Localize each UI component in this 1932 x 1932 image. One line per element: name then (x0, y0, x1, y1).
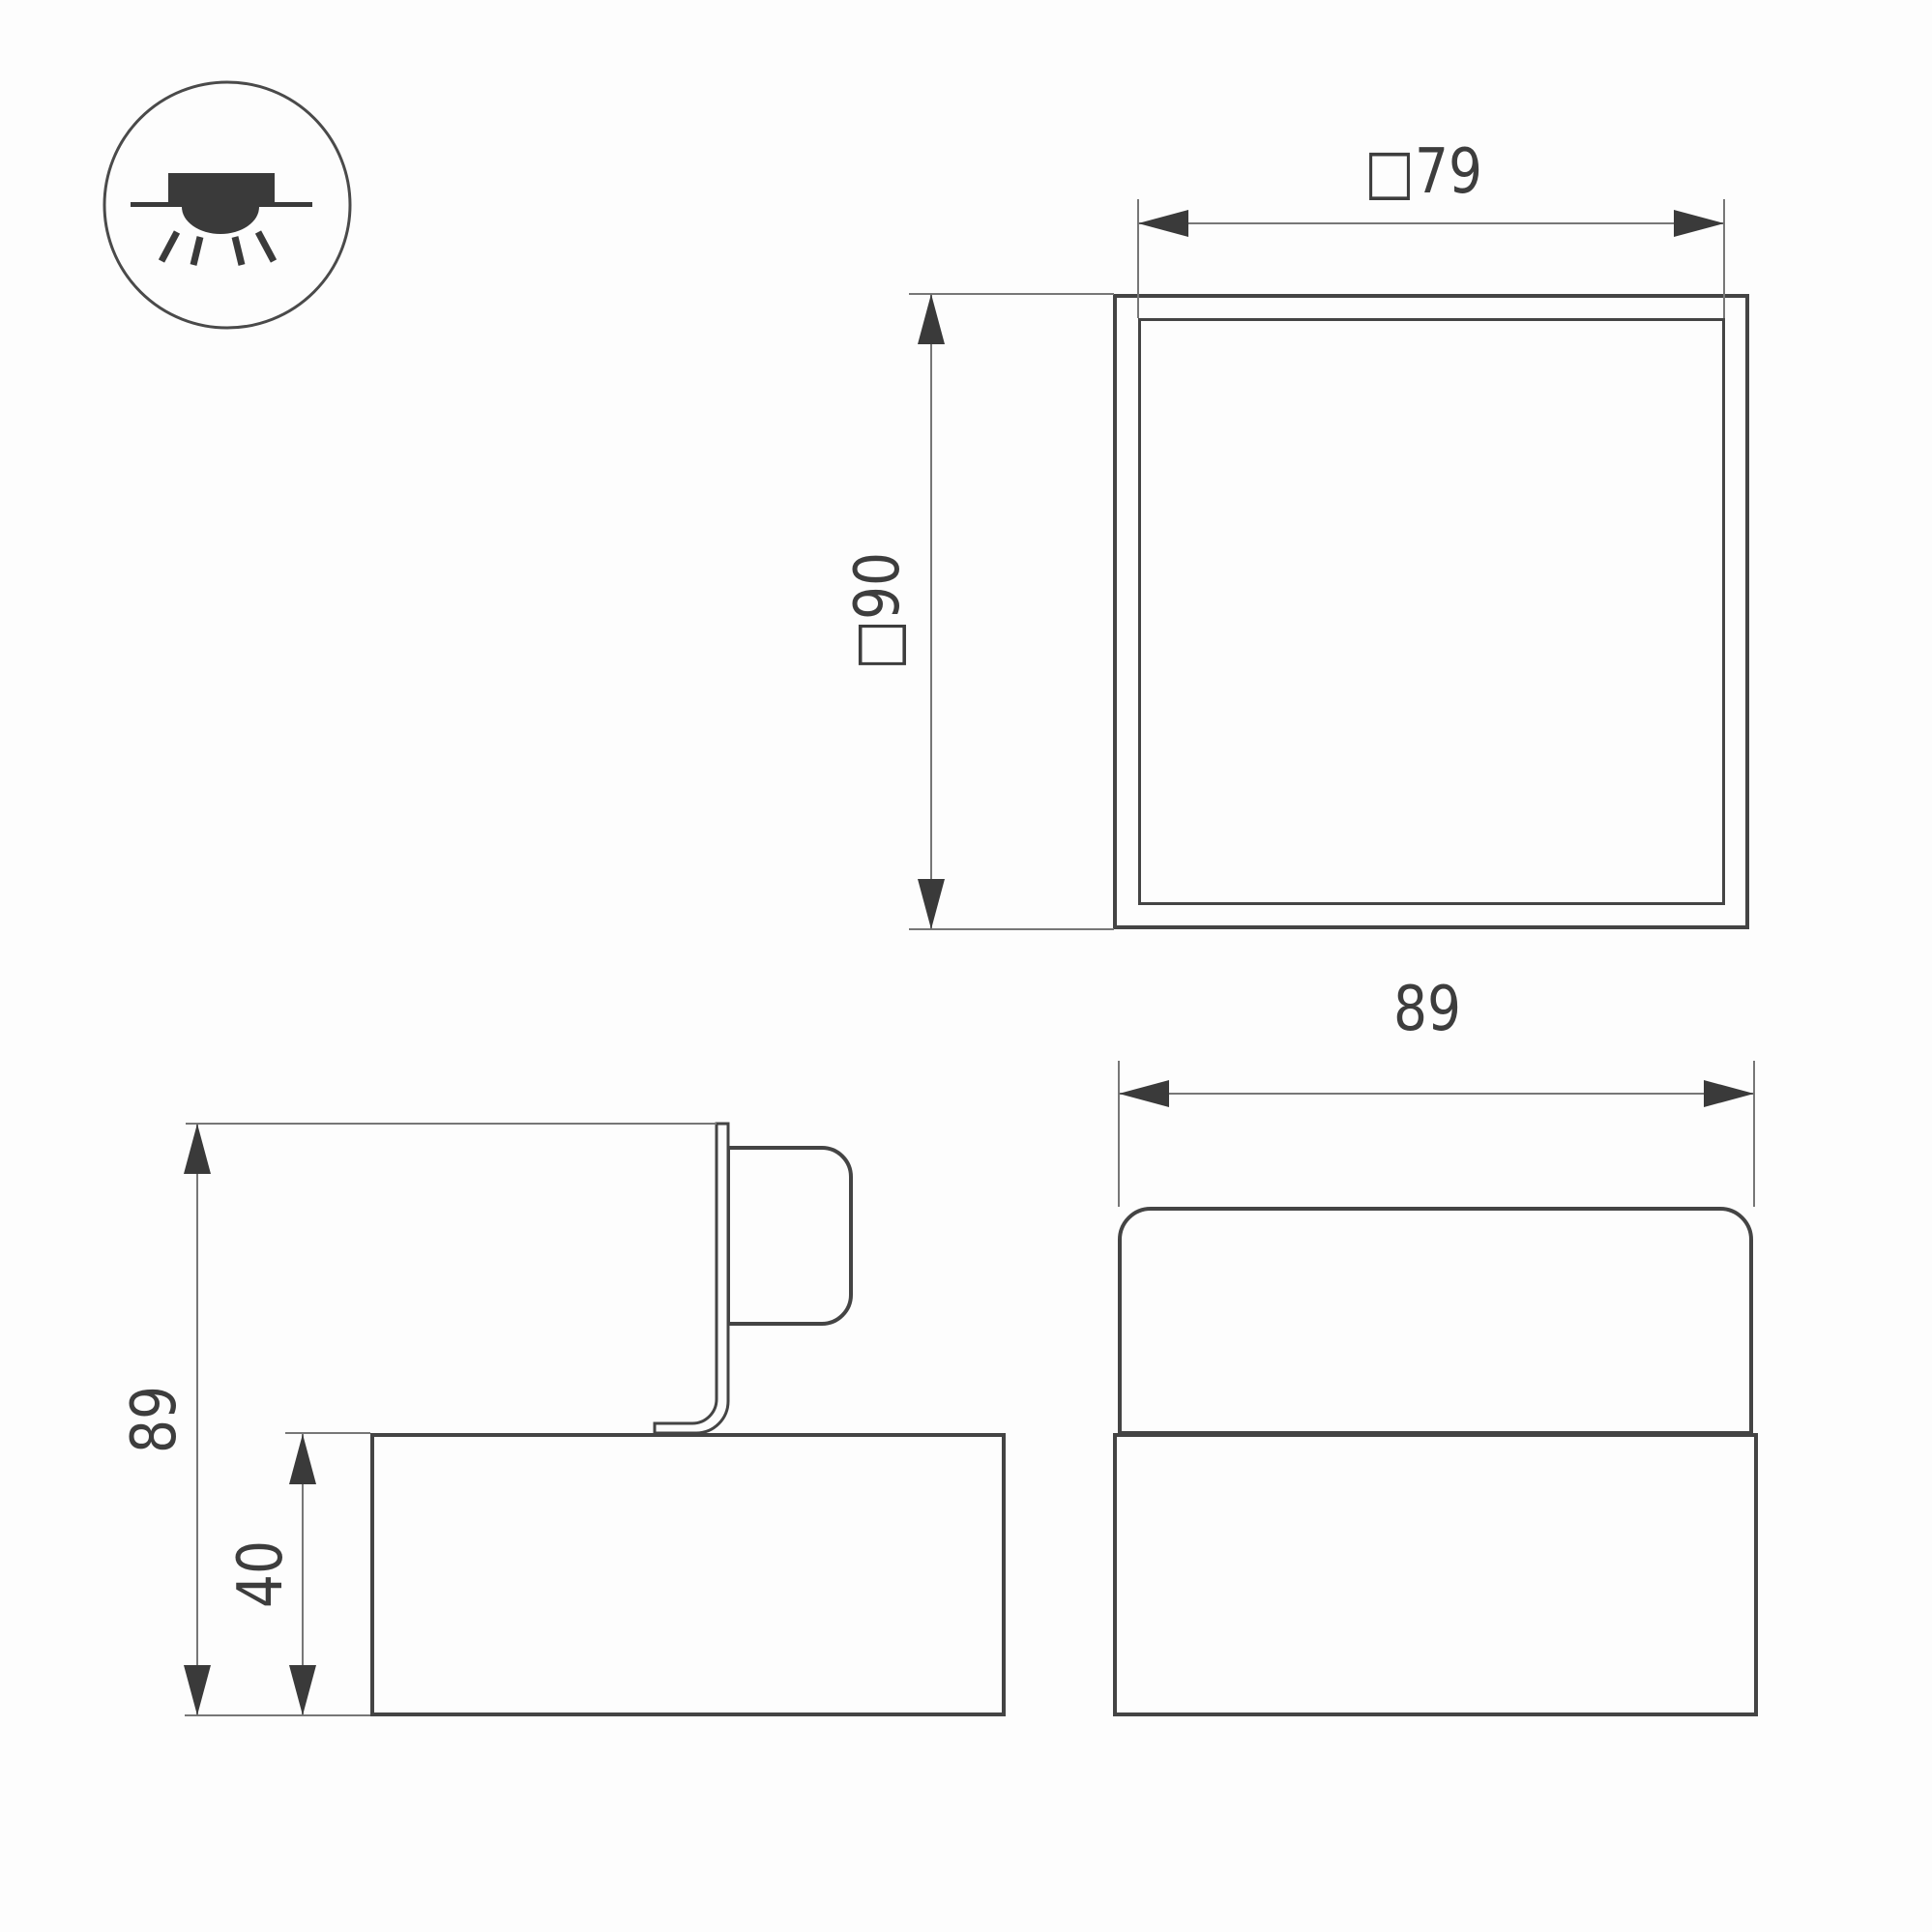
front-view-base (1113, 1433, 1758, 1716)
front-view-width-label: 89 (1388, 975, 1466, 1046)
drawing-sheet: □79 □90 89 (0, 0, 1932, 1932)
dimension-arrowhead (1704, 1080, 1754, 1107)
front-view: 89 (0, 0, 1932, 1932)
front-view-head (1118, 1207, 1753, 1435)
dimension-line (1119, 1093, 1754, 1095)
dimension-arrowhead (1119, 1080, 1169, 1107)
